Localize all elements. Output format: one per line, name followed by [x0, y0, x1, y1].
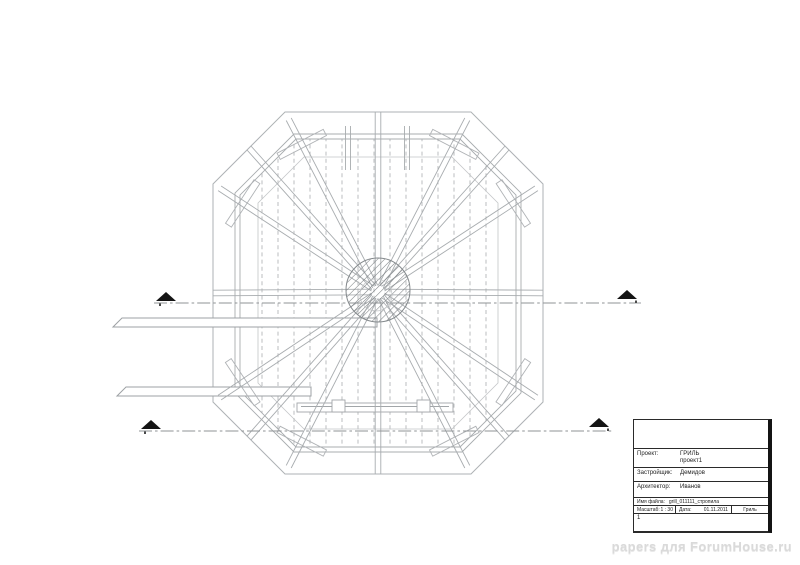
title-block-file-row: Имя файла:grill_011111_стропила [634, 498, 768, 506]
section-line-lower [139, 418, 613, 434]
chimney-opening [346, 258, 410, 322]
section-label-mark [159, 304, 161, 307]
mid-rafter [384, 150, 509, 290]
section-marker-triangle [141, 420, 161, 429]
section-label-mark [607, 429, 609, 432]
title-block-client-row: Застройщик: Демидов [634, 468, 768, 482]
section-label-mark [635, 301, 637, 304]
beam-block [417, 400, 430, 412]
sheet-name-cell: Гриль [732, 506, 768, 513]
title-block-architect-row: Архитектор: Иванов [634, 482, 768, 498]
drawing-sheet: Проект: ГРИЛЬ проект1 Застройщик: Демидо… [0, 0, 800, 565]
title-block-scale-row: Масштаб: 1 : 30 Дата: 01.11.2011 Гриль [634, 506, 768, 514]
mid-rafter [247, 295, 372, 437]
client-label: Застройщик: [637, 470, 672, 478]
architect-label: Архитектор: [637, 484, 670, 492]
architect-value: Иванов [680, 484, 701, 492]
hatched-circle [346, 258, 410, 322]
hip-rafter [383, 120, 470, 287]
mid-rafter [380, 146, 505, 286]
mid-rafter [251, 146, 376, 286]
section-marker-triangle [589, 418, 609, 427]
sheet-number: 1 [637, 515, 640, 523]
title-block-sheet-number-cell: 1 [634, 514, 768, 532]
section-marker-triangle [617, 290, 637, 299]
title-block: Проект: ГРИЛЬ проект1 Застройщик: Демидо… [633, 419, 772, 533]
title-block-project-row: Проект: ГРИЛЬ проект1 [634, 449, 768, 468]
scale-cell: Масштаб: 1 : 30 [634, 506, 676, 513]
mid-rafter [247, 150, 372, 290]
beam-block [332, 400, 345, 412]
date-cell: Дата: 01.11.2011 [676, 506, 732, 513]
title-block-logo-cell [634, 420, 768, 449]
project-value-line2: проект1 [680, 458, 702, 466]
blocking-piece [226, 180, 260, 227]
section-label-mark [144, 432, 146, 435]
scale-label: Масштаб: [637, 507, 660, 513]
client-value: Демидов [680, 470, 705, 478]
top-nailers [346, 126, 410, 170]
blocking-piece [496, 359, 531, 406]
watermark: papers для ForumHouse.ru [612, 539, 792, 554]
blocking-piece [225, 359, 260, 406]
date-value: 01.11.2011 [704, 507, 728, 513]
blocking-piece [496, 180, 530, 227]
mid-rafter [384, 295, 509, 437]
hip-rafter [221, 298, 374, 400]
scale-value: 1 : 30 [660, 507, 673, 513]
hip-rafter [381, 298, 534, 400]
hip-rafter [286, 120, 373, 287]
section-marker-triangle [156, 292, 176, 301]
file-value: grill_011111_стропила [669, 498, 719, 505]
file-label: Имя файла: [637, 498, 665, 505]
project-label: Проект: [637, 451, 658, 459]
left-beam-lower [117, 387, 311, 396]
date-label: Дата: [679, 507, 691, 513]
